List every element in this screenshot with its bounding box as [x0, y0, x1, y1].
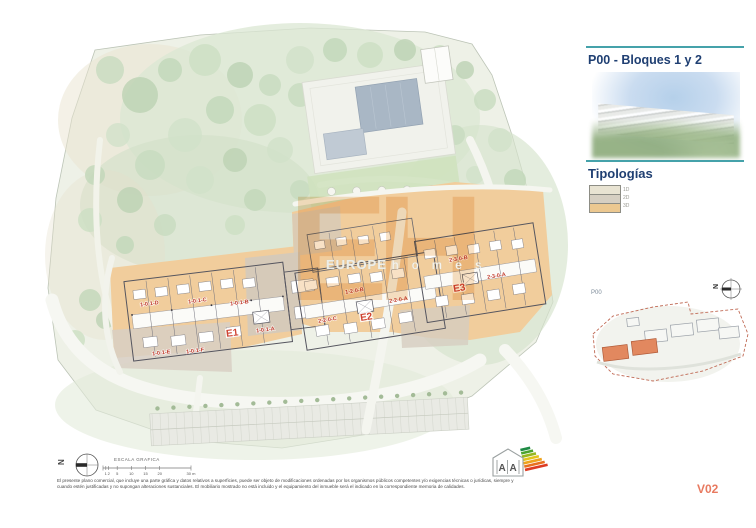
legend-label: 2D: [623, 194, 629, 202]
block-label-e2: E2: [359, 311, 373, 324]
svg-text:N: N: [713, 284, 720, 289]
svg-text:N: N: [57, 459, 66, 465]
divider-middle: [586, 160, 744, 162]
svg-text:5: 5: [116, 471, 119, 476]
tipologias-legend: 1D 2D 3D: [589, 186, 629, 213]
block-label-e1: E1: [226, 327, 240, 339]
svg-text:15: 15: [143, 471, 148, 476]
disclaimer-line2: cuando estén justificadas y no supongan …: [57, 484, 559, 490]
plan-sheet: 1-0-1-D 1-0-1-C 1-0-1-B 1-0-1-A 1-0-1-E …: [0, 0, 756, 528]
svg-text:20: 20: [157, 471, 162, 476]
page-title: P00 - Bloques 1 y 2: [588, 53, 702, 67]
block-label-e3: E3: [452, 282, 466, 295]
building-render-image: [592, 72, 740, 158]
render-vegetation: [592, 118, 740, 158]
version-label: V02: [697, 482, 718, 496]
scale-title: ESCALA GRAFICA: [114, 457, 160, 462]
scale-bar: ESCALA GRAFICA 1 2 5 10 15 20 30 m: [100, 455, 212, 479]
minimap-label: P00: [591, 290, 602, 296]
tipologias-heading: Tipologías: [588, 166, 653, 181]
disclaimer-text: El presente plano comercial, que incluye…: [57, 478, 559, 490]
pool-main: [355, 79, 423, 133]
pool-small: [323, 128, 366, 159]
key-minimap: P00 N: [583, 272, 755, 400]
legend-swatch-3d: [589, 203, 621, 213]
north-arrow-icon: N: [54, 450, 102, 480]
svg-text:10: 10: [129, 471, 134, 476]
legend-label: 3D: [623, 202, 629, 210]
legend-label: 1D: [623, 186, 629, 194]
minimap-north-arrow-icon: N: [713, 278, 742, 300]
scale-end-label: 30 m: [187, 471, 197, 476]
svg-text:2: 2: [108, 471, 111, 476]
svg-text:A: A: [510, 463, 517, 474]
energy-rating-icon: A A: [487, 445, 549, 479]
divider-top: [586, 46, 744, 48]
svg-text:A: A: [499, 463, 506, 474]
